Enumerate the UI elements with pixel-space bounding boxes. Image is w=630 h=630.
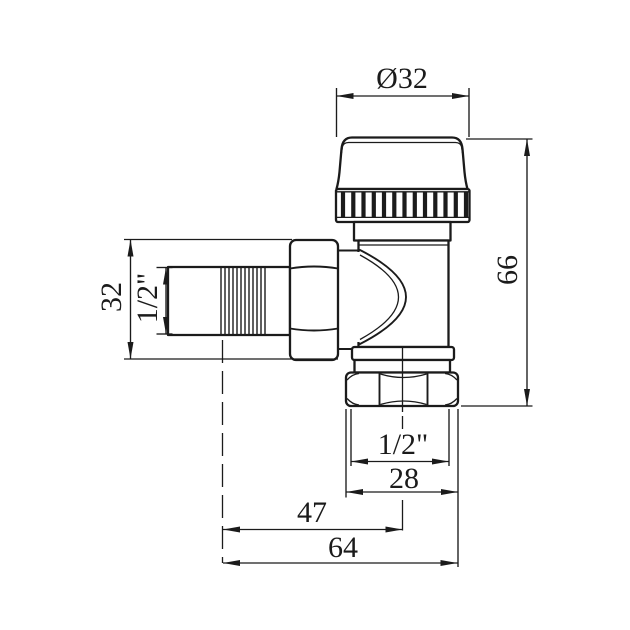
dim-label-side-height: 32: [97, 282, 127, 312]
dim-label-axis-offset: 47: [297, 498, 327, 528]
dim-cap-diameter-lines: [337, 88, 470, 137]
dim-label-nut-width: 28: [389, 464, 419, 494]
dim-label-bottom-thread: 1/2": [378, 430, 429, 460]
drawing-canvas: Ø32 66 32 1/2" 1/2" 28 47 64: [0, 0, 630, 630]
side-union-nut: [290, 240, 338, 360]
bonnet-neck: [354, 222, 451, 241]
dim-label-side-thread: 1/2": [133, 273, 163, 324]
valve-head-cap: [337, 138, 468, 190]
branch-joint: [338, 251, 359, 350]
dim-label-total-height: 66: [493, 255, 523, 285]
valve-body: [359, 241, 449, 348]
dim-label-total-length: 64: [328, 533, 358, 563]
knurled-ring: [336, 189, 470, 222]
knurl-ribs: [343, 192, 466, 218]
valve-drawing-svg: [0, 0, 630, 630]
dim-label-cap-diameter: Ø32: [376, 64, 428, 94]
side-tailpiece: [168, 267, 290, 335]
